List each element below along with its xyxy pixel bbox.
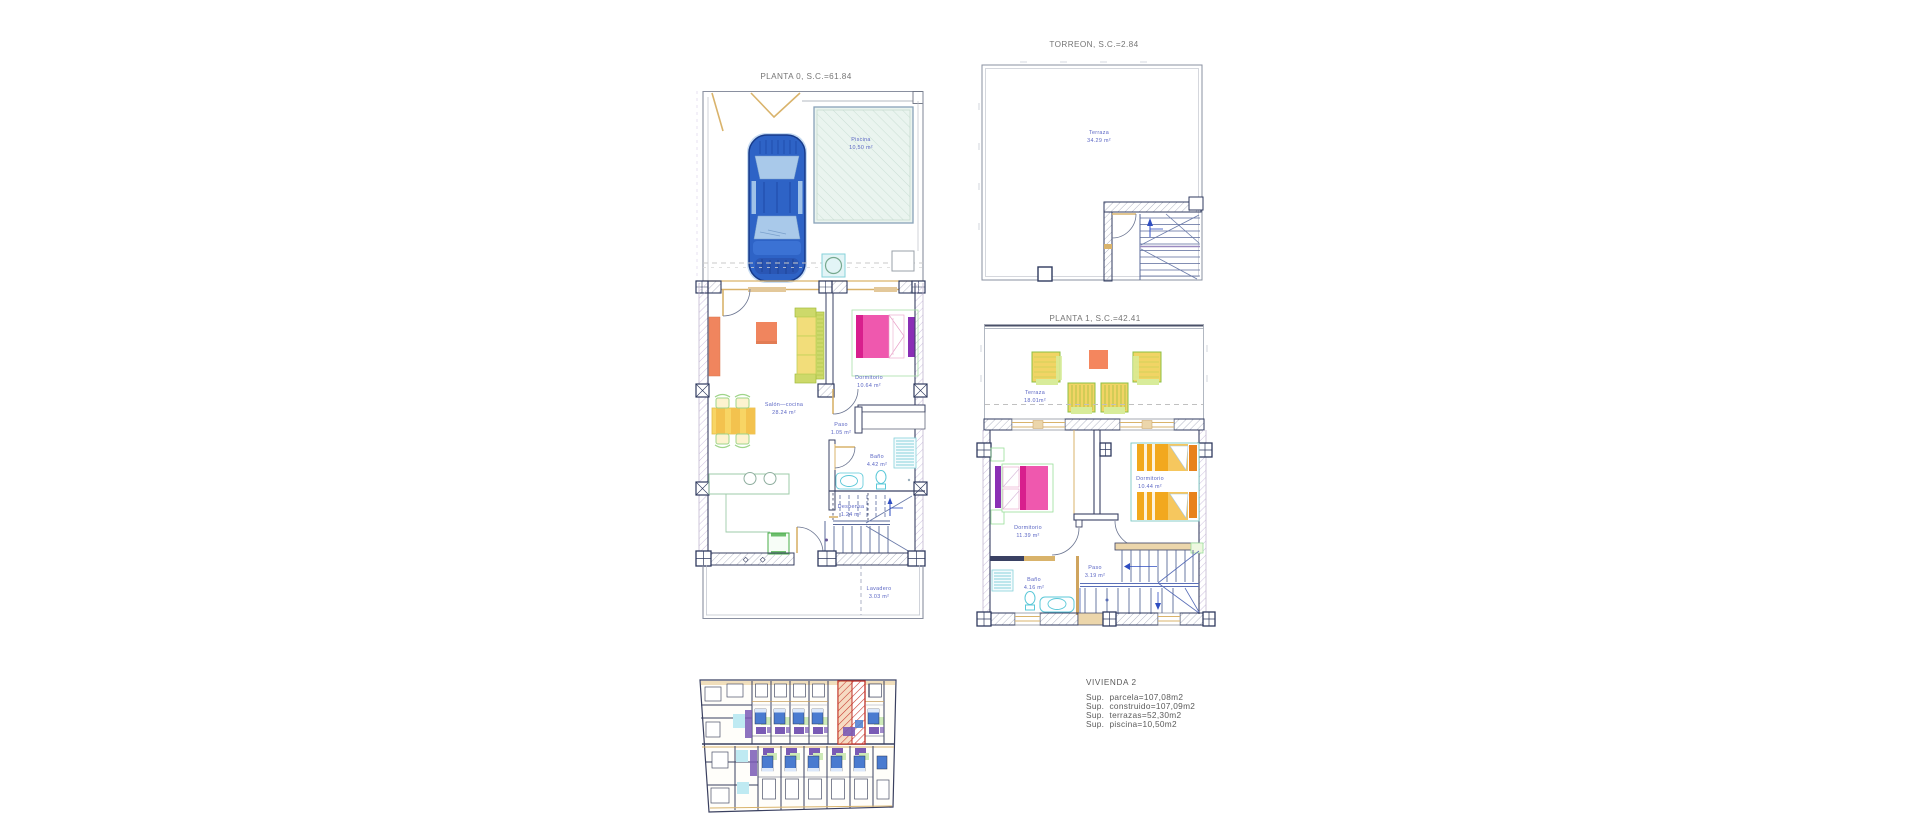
svg-text:Despensa: Despensa — [838, 504, 865, 510]
svg-text:3.03 m²: 3.03 m² — [869, 594, 889, 600]
svg-text:3.19 m²: 3.19 m² — [1085, 573, 1105, 579]
svg-text:Dormitorio: Dormitorio — [1136, 476, 1164, 482]
svg-text:4.16 m²: 4.16 m² — [1024, 585, 1044, 591]
svg-text:PLANTA 0, S.C.=61.84: PLANTA 0, S.C.=61.84 — [760, 72, 851, 81]
svg-text:11.39 m²: 11.39 m² — [1016, 533, 1039, 539]
svg-text:10,50 m²: 10,50 m² — [849, 145, 873, 151]
svg-text:Salón—cocina: Salón—cocina — [765, 402, 803, 408]
svg-text:18.01m²: 18.01m² — [1024, 398, 1046, 404]
svg-text:10.44 m²: 10.44 m² — [1138, 484, 1162, 490]
svg-text:Dormitorio: Dormitorio — [855, 375, 883, 381]
svg-text:Paso: Paso — [834, 422, 848, 428]
svg-text:Dormitorio: Dormitorio — [1014, 525, 1042, 531]
svg-text:PLANTA 1, S.C.=42.41: PLANTA 1, S.C.=42.41 — [1049, 314, 1140, 323]
svg-text:Baño: Baño — [870, 454, 884, 460]
svg-text:1.24 m²: 1.24 m² — [841, 512, 861, 518]
svg-text:VIVIENDA 2: VIVIENDA 2 — [1086, 678, 1137, 687]
svg-text:TORREON, S.C.=2.84: TORREON, S.C.=2.84 — [1049, 40, 1138, 49]
svg-text:Terraza: Terraza — [1025, 390, 1045, 396]
svg-text:28.24 m²: 28.24 m² — [772, 410, 796, 416]
svg-text:Paso: Paso — [1088, 565, 1102, 571]
svg-text:1.05 m²: 1.05 m² — [831, 430, 851, 436]
svg-text:10.64 m²: 10.64 m² — [857, 383, 881, 389]
svg-text:4.42 m²: 4.42 m² — [867, 462, 887, 468]
svg-text:Sup. piscina=10,50m2: Sup. piscina=10,50m2 — [1086, 719, 1177, 729]
svg-text:34.29 m²: 34.29 m² — [1087, 138, 1111, 144]
svg-text:Piscina: Piscina — [851, 137, 870, 143]
svg-text:Terraza: Terraza — [1089, 130, 1109, 136]
svg-text:Baño: Baño — [1027, 577, 1041, 583]
svg-text:Lavadero: Lavadero — [867, 586, 892, 592]
